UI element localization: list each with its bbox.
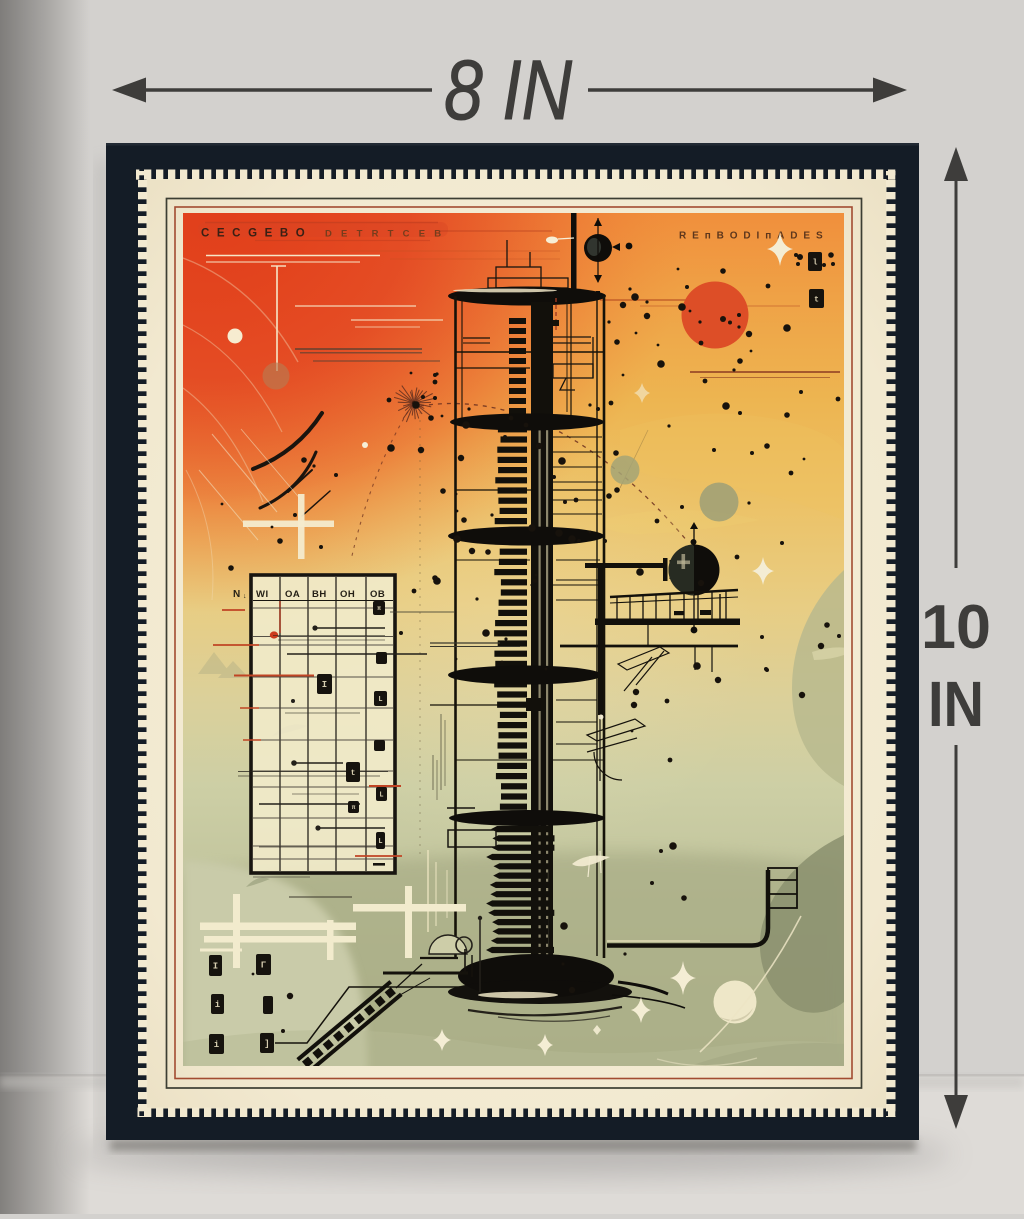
svg-text:I: I [213,962,218,972]
svg-text:i: i [215,1000,221,1010]
svg-text:Γ: Γ [261,961,267,971]
svg-text:OB: OB [370,589,385,600]
svg-text:L: L [378,838,382,846]
svg-text:WI: WI [256,589,269,600]
svg-text:OA: OA [285,589,300,600]
svg-text:L: L [378,696,382,704]
svg-text:π: π [377,605,381,612]
svg-text:L: L [379,792,383,800]
svg-text:CECGEBO: CECGEBO [201,228,312,240]
svg-text:↓: ↓ [243,593,247,600]
svg-text:BH: BH [312,589,327,600]
svg-text:10: 10 [921,593,991,662]
svg-text:t: t [814,295,819,304]
svg-text:IN: IN [928,668,984,740]
svg-text:π: π [352,804,356,811]
svg-text:N: N [233,589,240,600]
svg-text:t: t [351,769,356,778]
svg-text:i: i [214,1040,220,1050]
svg-text:REпBODIпADES: REпBODIпADES [679,231,829,242]
svg-text:OH: OH [340,589,355,600]
svg-text:8 IN: 8 IN [444,43,572,137]
svg-text:]: ] [264,1039,269,1049]
svg-text:DETRTCEB: DETRTCEB [325,229,450,240]
svg-text:I: I [322,680,327,690]
svg-text:l: l [813,258,818,267]
